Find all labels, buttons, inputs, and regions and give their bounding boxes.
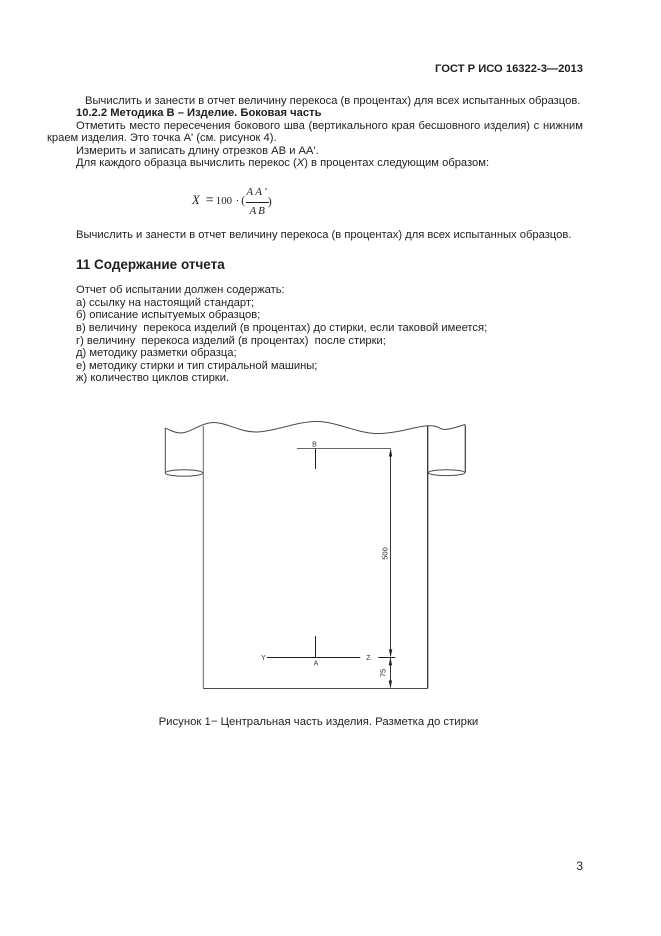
svg-text:A: A xyxy=(314,660,319,667)
svg-text:Z: Z xyxy=(366,655,371,662)
svg-text:B: B xyxy=(312,442,317,449)
svg-text:500: 500 xyxy=(380,547,389,560)
svg-text:Y: Y xyxy=(261,655,266,662)
svg-text:75: 75 xyxy=(379,669,388,677)
